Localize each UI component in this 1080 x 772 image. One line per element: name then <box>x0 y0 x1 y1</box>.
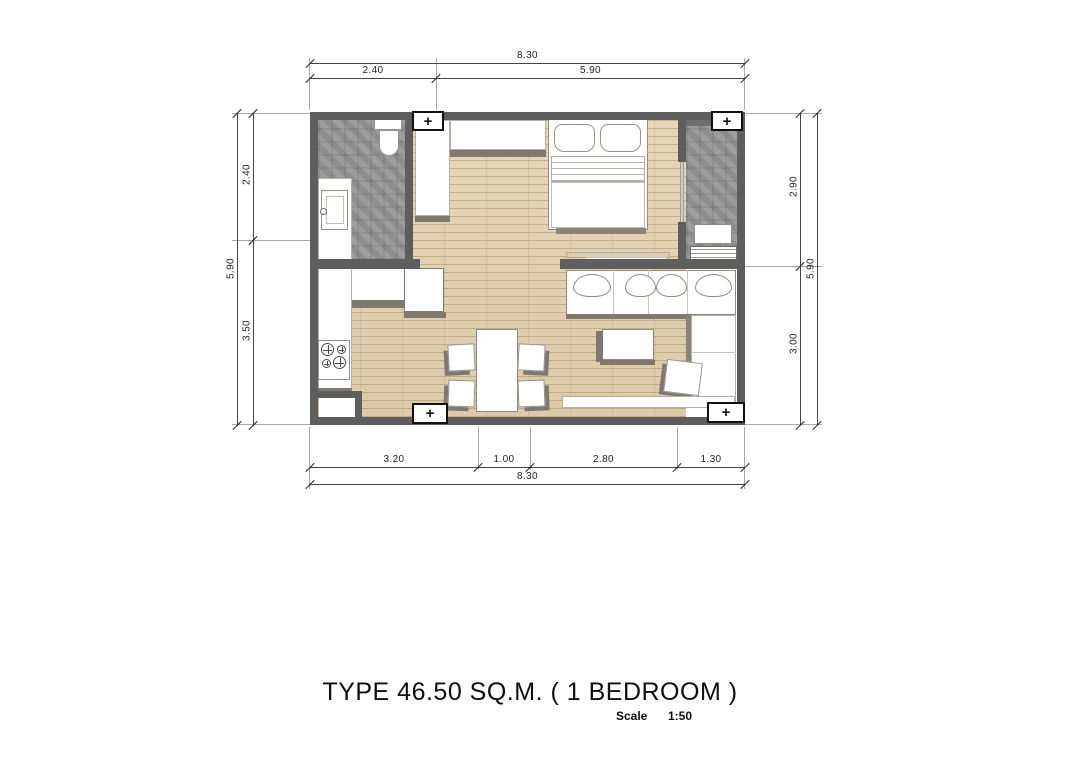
dimension-line-right-segments <box>800 113 801 425</box>
entrance-recess <box>319 398 355 417</box>
wardrobe <box>450 120 546 150</box>
bed-shadow <box>556 228 646 234</box>
dining-chair <box>518 380 546 408</box>
dimension-line-top-overall <box>310 63 745 64</box>
plan-title: TYPE 46.50 SQ.M. ( 1 BEDROOM ) <box>270 678 790 707</box>
sink-basin-inner <box>326 196 344 224</box>
scale-value: 1:50 <box>668 709 692 723</box>
column-marker-symbol: + <box>426 406 435 421</box>
dim-bottom-overall: 8.30 <box>310 471 745 482</box>
column-marker-symbol: + <box>723 114 732 129</box>
sofa-seam <box>613 270 614 315</box>
dim-left-seg-1: 2.40 <box>242 155 253 195</box>
pillow <box>600 124 641 152</box>
column-marker-icon: + <box>707 402 745 423</box>
column-marker-icon: + <box>412 403 448 424</box>
dim-right-overall: 5.90 <box>806 249 817 289</box>
dim-left-overall: 5.90 <box>226 249 237 289</box>
coffee-table-shadow-left <box>596 331 603 362</box>
wall-bottom <box>310 417 745 425</box>
extension-line <box>232 424 310 425</box>
extension-line <box>745 424 822 425</box>
ac-stand <box>694 224 732 244</box>
entry-cabinet <box>415 120 450 216</box>
wall-balcony-west-top <box>678 117 686 162</box>
dim-right-seg-1: 2.90 <box>789 167 800 207</box>
armchair <box>663 359 703 396</box>
column-marker-symbol: + <box>722 405 731 420</box>
column-marker-icon: + <box>711 111 743 131</box>
wall-bathroom-east <box>405 117 413 263</box>
wall-balcony-west-bottom <box>678 222 686 267</box>
stove-burner-icon <box>333 356 346 369</box>
sofa-cushion <box>573 274 611 297</box>
stove-burner-icon <box>321 343 334 356</box>
dimension-line-top-segments <box>310 78 745 79</box>
column-marker-icon: + <box>412 111 444 131</box>
floor-plan-canvas: + + + + 8.30 2.40 5.90 3.20 1.00 2 <box>0 0 1080 772</box>
sofa-shadow <box>566 314 692 319</box>
dim-bottom-seg-1: 3.20 <box>310 454 478 465</box>
stove-burner-icon <box>322 359 331 368</box>
toilet-bowl <box>379 130 399 156</box>
fridge-shadow <box>404 312 446 318</box>
scale-label: Scale <box>616 709 647 723</box>
extension-line <box>232 240 310 241</box>
dimension-line-right-overall <box>817 113 818 425</box>
dim-right-seg-2: 3.00 <box>789 324 800 364</box>
dim-bottom-seg-3: 2.80 <box>530 454 677 465</box>
sink-faucet <box>320 208 327 215</box>
dining-chair <box>447 343 475 371</box>
stove-burner-icon <box>337 345 346 354</box>
coffee-table-shadow-bottom <box>600 360 655 365</box>
column-marker-symbol: + <box>424 114 433 129</box>
pillow <box>554 124 595 152</box>
wall-bathroom-south <box>310 259 420 269</box>
dim-top-seg-1: 2.40 <box>310 65 436 76</box>
bed-fold-band <box>551 156 645 182</box>
dining-chair <box>448 380 476 408</box>
dim-top-seg-2: 5.90 <box>436 65 745 76</box>
coffee-table <box>602 329 654 360</box>
dimension-line-bottom-overall <box>310 484 745 485</box>
chaise-seam <box>691 352 736 353</box>
sofa-cushion <box>625 274 656 297</box>
dimension-line-left-overall <box>237 113 238 425</box>
fridge <box>404 268 444 312</box>
dim-left-seg-2: 3.50 <box>242 311 253 351</box>
kitchen-counter-shadow <box>352 300 406 308</box>
dimension-line-left-segments <box>253 113 254 425</box>
sofa-seam <box>687 270 688 315</box>
dining-table <box>476 329 518 412</box>
balcony-sliding-door <box>680 162 684 222</box>
wall-entrance-stub-v <box>355 391 362 425</box>
extension-line <box>232 113 310 114</box>
sofa-cushion <box>656 274 687 297</box>
bed-duvet <box>551 182 645 228</box>
wall-bedroom-south <box>560 259 745 269</box>
wardrobe-shadow <box>450 150 546 157</box>
dim-bottom-seg-2: 1.00 <box>478 454 530 465</box>
entry-cabinet-shadow <box>415 216 450 222</box>
dining-chair <box>517 343 545 371</box>
sofa-cushion <box>695 274 732 297</box>
extension-line <box>745 113 822 114</box>
dim-bottom-seg-4: 1.30 <box>677 454 745 465</box>
dim-top-overall: 8.30 <box>310 50 745 61</box>
